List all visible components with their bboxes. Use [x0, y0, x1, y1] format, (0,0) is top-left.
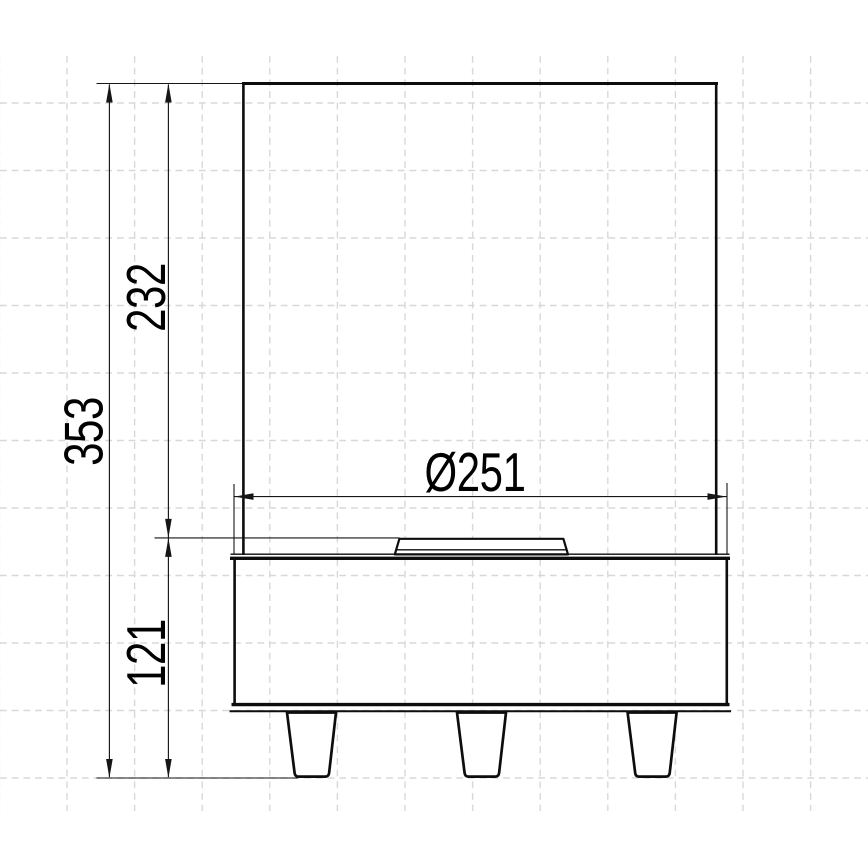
- dim-label-glass-height: 232: [117, 263, 178, 332]
- dim-label-base-diameter: Ø251: [424, 443, 525, 504]
- arrow-down-232-bottom: [165, 519, 172, 538]
- dimension-arrows: [106, 84, 726, 779]
- dimension-labels: 353 232 121 Ø251: [54, 263, 525, 688]
- dimension-extension-lines: [97, 84, 728, 779]
- leg-left: [287, 713, 336, 777]
- dim-label-base-height: 121: [117, 619, 178, 688]
- object-outline: [230, 82, 732, 776]
- dim-label-total-height: 353: [54, 397, 115, 466]
- background-grid: [0, 56, 868, 811]
- technical-drawing-canvas: 353 232 121 Ø251: [0, 0, 868, 868]
- leg-middle: [457, 713, 506, 777]
- burner-lid: [395, 539, 568, 555]
- base-body: [230, 554, 732, 711]
- arrow-down-353-bottom: [106, 759, 113, 778]
- arrow-up-353-top: [106, 84, 113, 103]
- technical-drawing-page: 353 232 121 Ø251: [0, 0, 868, 868]
- burner-lid-body: [395, 539, 568, 555]
- arrow-down-121-bottom: [165, 759, 172, 778]
- arrow-up-232-top: [165, 84, 172, 103]
- leg-right: [628, 713, 677, 777]
- arrow-up-121-top: [165, 538, 172, 557]
- legs: [287, 713, 677, 777]
